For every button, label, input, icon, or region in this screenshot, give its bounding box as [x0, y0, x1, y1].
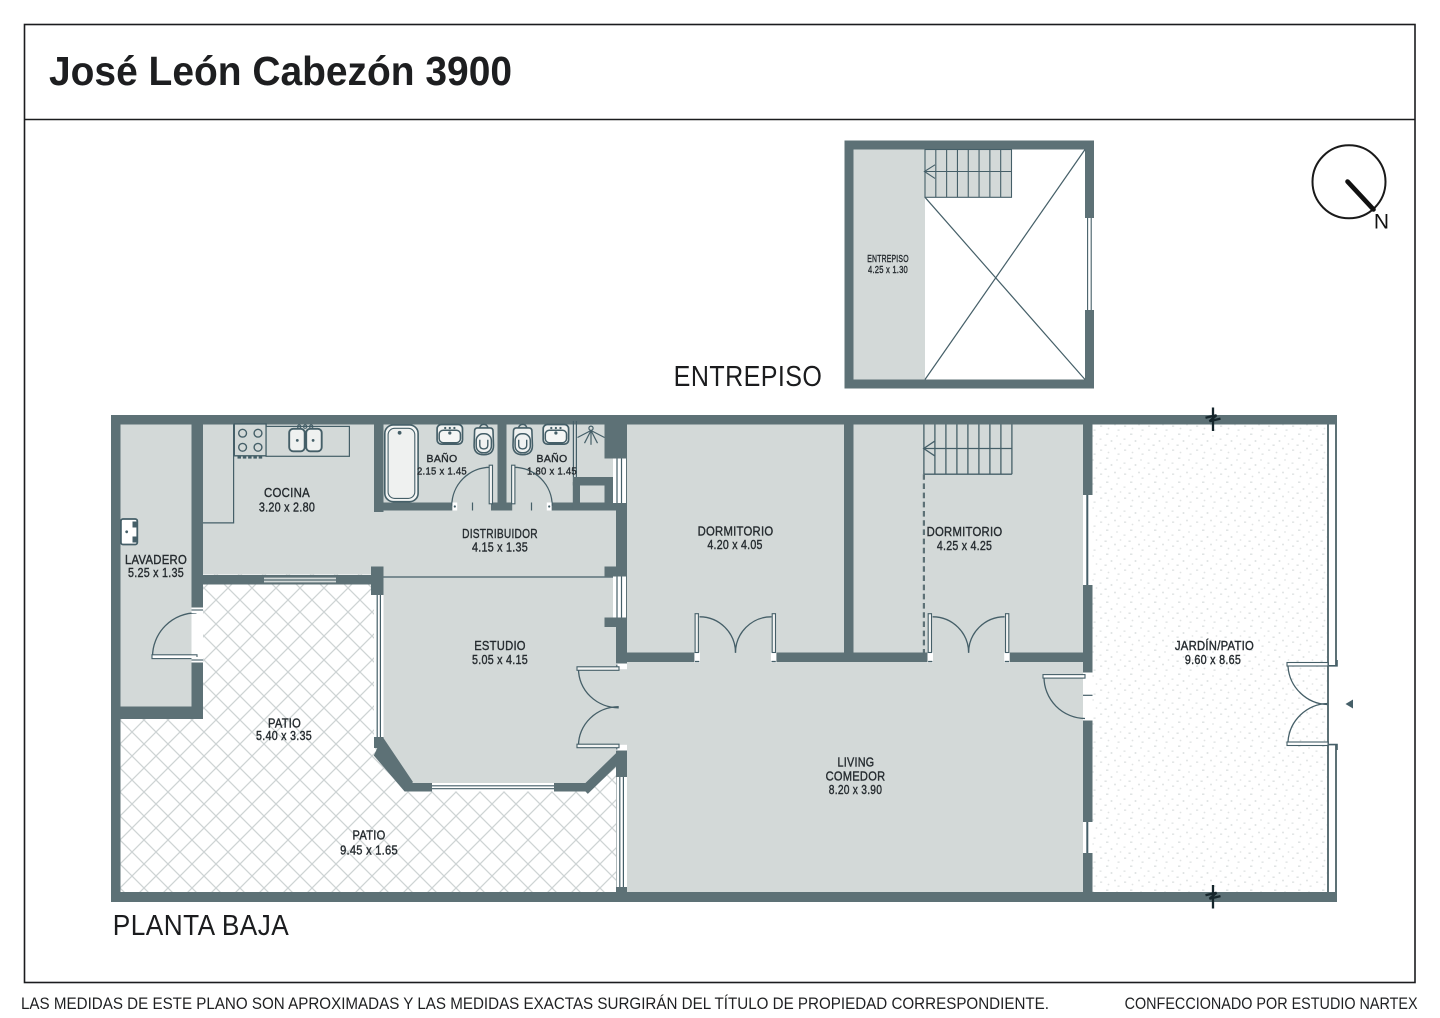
- svg-text:ESTUDIO: ESTUDIO: [474, 638, 526, 653]
- svg-text:4.25 x 1.30: 4.25 x 1.30: [868, 264, 908, 276]
- svg-text:COCINA: COCINA: [264, 485, 310, 500]
- svg-text:9.45 x 1.65: 9.45 x 1.65: [340, 844, 398, 858]
- svg-text:5.40 x 3.35: 5.40 x 3.35: [256, 729, 312, 743]
- svg-text:José León Cabezón 3900: José León Cabezón 3900: [49, 48, 512, 94]
- svg-text:4.25 x 4.25: 4.25 x 4.25: [937, 538, 992, 553]
- svg-text:N: N: [1374, 211, 1389, 234]
- svg-text:3.20 x 2.80: 3.20 x 2.80: [259, 500, 315, 515]
- svg-text:LAVADERO: LAVADERO: [125, 553, 187, 567]
- svg-text:5.25 x 1.35: 5.25 x 1.35: [128, 566, 184, 580]
- svg-text:LIVING: LIVING: [838, 755, 875, 770]
- svg-text:LAS MEDIDAS DE ESTE PLANO SON: LAS MEDIDAS DE ESTE PLANO SON APROXIMADA…: [21, 994, 1049, 1013]
- svg-text:ENTREPISO: ENTREPISO: [674, 360, 823, 393]
- svg-text:DORMITORIO: DORMITORIO: [927, 524, 1003, 539]
- svg-text:BAÑO: BAÑO: [427, 452, 458, 465]
- svg-text:BAÑO: BAÑO: [537, 452, 568, 465]
- svg-text:8.20 x 3.90: 8.20 x 3.90: [829, 782, 882, 797]
- svg-text:4.15 x 1.35: 4.15 x 1.35: [472, 540, 528, 555]
- svg-text:1.80 x 1.45: 1.80 x 1.45: [527, 466, 577, 478]
- svg-text:5.05 x 4.15: 5.05 x 4.15: [472, 652, 528, 667]
- svg-text:CONFECCIONADO POR ESTUDIO NART: CONFECCIONADO POR ESTUDIO NARTEX: [1125, 995, 1418, 1013]
- svg-text:JARDÍN/PATIO: JARDÍN/PATIO: [1175, 638, 1254, 653]
- svg-text:9.60 x 8.65: 9.60 x 8.65: [1185, 653, 1241, 667]
- svg-text:PLANTA BAJA: PLANTA BAJA: [113, 909, 289, 941]
- svg-text:4.20 x 4.05: 4.20 x 4.05: [707, 537, 762, 552]
- svg-text:PATIO: PATIO: [353, 829, 386, 843]
- svg-text:2.15 x 1.45: 2.15 x 1.45: [417, 466, 467, 478]
